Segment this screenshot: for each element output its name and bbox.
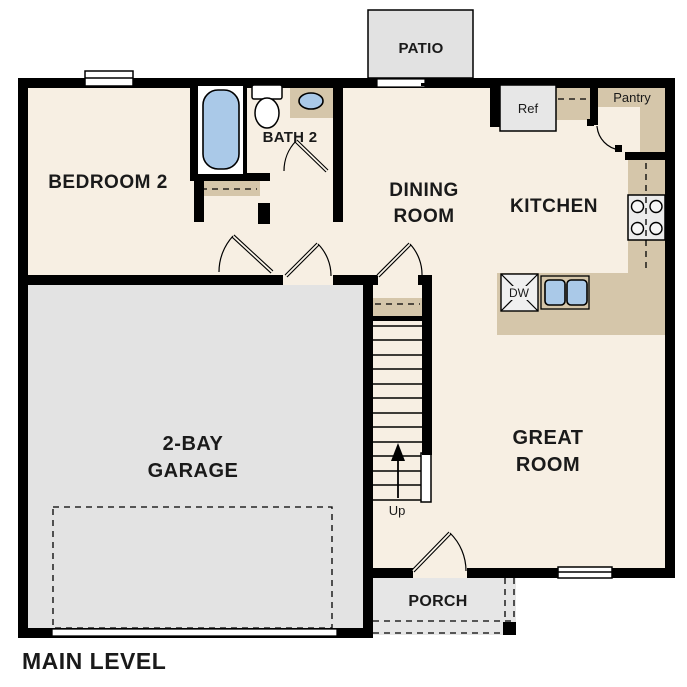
opening-entry-door xyxy=(413,568,467,578)
dining-label-line1: DINING xyxy=(389,180,459,201)
wall-tub-left xyxy=(190,78,198,175)
wall-pantry-stub xyxy=(590,78,598,125)
wall-garage-right xyxy=(363,275,373,638)
refrigerator-label: Ref xyxy=(518,101,539,116)
porch-label: PORCH xyxy=(408,593,467,610)
wall-pantry-bottom xyxy=(625,152,675,160)
opening-stair-door xyxy=(378,275,418,285)
garage-label-line1: 2-BAY xyxy=(163,433,224,455)
wall-left xyxy=(18,78,28,638)
stairs-up-label: Up xyxy=(389,503,406,518)
bath2-sink-counter xyxy=(290,85,333,118)
kitchen-sink-icon xyxy=(541,276,589,309)
wall-closet-left-stub xyxy=(194,178,204,222)
garage-label-line2: GARAGE xyxy=(148,460,239,482)
patio-label: PATIO xyxy=(398,40,443,57)
wall-tub-divider xyxy=(243,80,247,173)
wall-bath-dining xyxy=(333,78,343,222)
kitchen-upper-cabinet xyxy=(556,85,593,120)
wall-ref-nook xyxy=(490,83,500,127)
bath2-linen-shelf xyxy=(198,181,260,196)
bath2-label: BATH 2 xyxy=(263,129,318,146)
doorstop-pantry-top xyxy=(587,119,594,126)
porch-post xyxy=(503,622,516,635)
floorplan-canvas: PATIO BEDROOM 2 BATH 2 DINING ROOM KITCH… xyxy=(0,0,687,687)
doorstop-pantry-bottom xyxy=(615,145,622,152)
stair-closet-shelf xyxy=(373,298,422,318)
kitchen-label: KITCHEN xyxy=(510,196,598,217)
range-stove-icon xyxy=(628,195,665,240)
toilet-icon xyxy=(252,85,282,128)
window-greatroom xyxy=(558,567,612,578)
stair-rail xyxy=(421,453,431,502)
greatroom-label-line1: GREAT xyxy=(512,427,583,449)
wall-greatroom-bottom xyxy=(363,568,675,578)
wall-closet-right-stub xyxy=(258,203,270,224)
floorplan-svg: PATIO BEDROOM 2 BATH 2 DINING ROOM KITCH… xyxy=(0,0,687,687)
pantry-label: Pantry xyxy=(613,90,651,105)
wall-stair-right xyxy=(422,275,432,455)
bedroom2-label: BEDROOM 2 xyxy=(48,172,168,193)
bathtub-icon xyxy=(203,90,239,169)
window-bedroom2 xyxy=(85,71,133,86)
garage-overhead-door xyxy=(52,629,337,636)
opening-garage-door xyxy=(283,275,333,285)
dishwasher-label: DW xyxy=(509,286,530,300)
dining-label-line2: ROOM xyxy=(393,206,454,227)
bath2-sink-icon xyxy=(299,93,323,109)
garage-floor-area xyxy=(28,285,363,628)
plan-title: MAIN LEVEL xyxy=(22,648,166,674)
greatroom-label-line2: ROOM xyxy=(516,454,580,476)
